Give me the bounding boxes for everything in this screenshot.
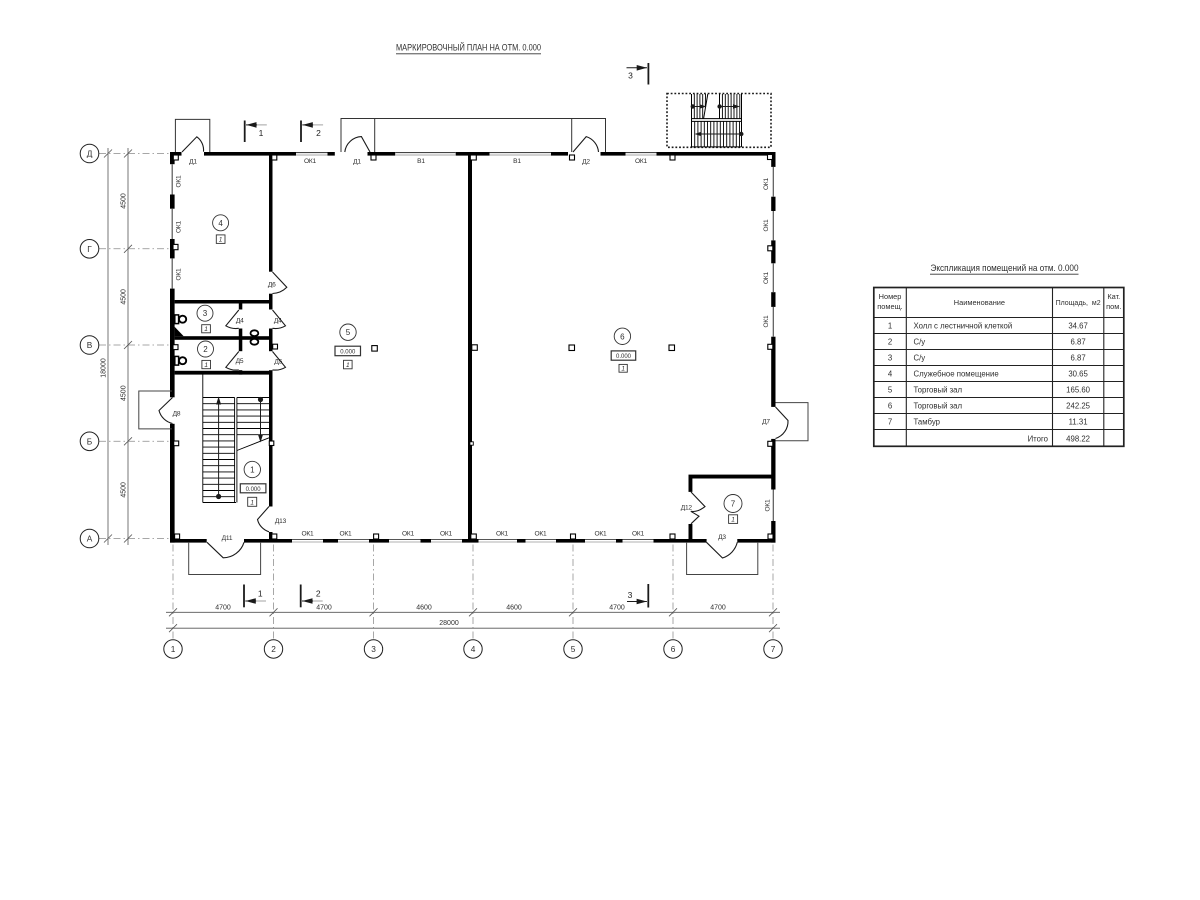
- svg-text:2: 2: [316, 589, 321, 599]
- svg-text:6.87: 6.87: [1071, 354, 1086, 363]
- svg-text:7: 7: [771, 644, 776, 654]
- svg-text:Д6: Д6: [268, 282, 276, 289]
- svg-text:4700: 4700: [215, 605, 231, 612]
- svg-text:1: 1: [219, 237, 223, 244]
- svg-text:Кат.: Кат.: [1107, 292, 1120, 301]
- svg-text:2: 2: [316, 128, 321, 138]
- svg-text:4700: 4700: [710, 605, 726, 612]
- svg-text:Д2: Д2: [582, 159, 590, 166]
- svg-text:5: 5: [346, 328, 351, 337]
- svg-text:Наименование: Наименование: [954, 298, 1005, 307]
- svg-text:7: 7: [731, 500, 736, 509]
- svg-text:4500: 4500: [120, 385, 127, 401]
- svg-text:ОК1: ОК1: [301, 531, 314, 538]
- svg-text:Служебное помещение: Служебное помещение: [914, 370, 999, 379]
- svg-text:4600: 4600: [506, 605, 522, 612]
- svg-text:ОК1: ОК1: [304, 158, 317, 165]
- svg-text:помещ.: помещ.: [877, 302, 902, 311]
- svg-text:4500: 4500: [120, 193, 127, 209]
- svg-text:ОК1: ОК1: [765, 499, 772, 512]
- svg-text:МАРКИРОВОЧНЫЙ ПЛАН НА ОТМ. 0.0: МАРКИРОВОЧНЫЙ ПЛАН НА ОТМ. 0.000: [396, 42, 541, 53]
- svg-text:С/у: С/у: [914, 338, 926, 347]
- svg-text:ОК1: ОК1: [496, 531, 509, 538]
- svg-text:0.000: 0.000: [340, 350, 356, 356]
- svg-text:4: 4: [471, 644, 476, 654]
- svg-text:6.87: 6.87: [1071, 338, 1086, 347]
- svg-text:Д11: Д11: [222, 535, 233, 542]
- svg-text:3: 3: [628, 590, 633, 600]
- svg-text:ОК1: ОК1: [763, 219, 770, 232]
- svg-text:Д1: Д1: [189, 159, 197, 166]
- svg-text:5: 5: [571, 644, 576, 654]
- svg-text:28000: 28000: [439, 620, 459, 627]
- svg-text:6: 6: [671, 644, 676, 654]
- svg-text:6: 6: [888, 402, 892, 411]
- svg-text:30.65: 30.65: [1068, 370, 1088, 379]
- svg-text:4500: 4500: [120, 482, 127, 498]
- svg-text:Экспликация помещений на отм.: Экспликация помещений на отм. 0.000: [931, 263, 1079, 273]
- svg-text:3: 3: [888, 354, 892, 363]
- svg-text:1: 1: [204, 362, 208, 369]
- svg-text:пом.: пом.: [1106, 302, 1121, 311]
- svg-text:242.25: 242.25: [1066, 402, 1091, 411]
- svg-text:ОК1: ОК1: [763, 177, 770, 190]
- svg-text:4600: 4600: [416, 605, 432, 612]
- svg-text:2: 2: [888, 338, 892, 347]
- svg-text:34.67: 34.67: [1068, 322, 1088, 331]
- svg-text:Д1: Д1: [353, 159, 361, 166]
- svg-text:Торговый зал: Торговый зал: [914, 386, 963, 395]
- svg-text:Д3: Д3: [718, 534, 726, 541]
- svg-text:Д12: Д12: [681, 504, 693, 511]
- svg-text:Д5: Д5: [236, 358, 244, 365]
- svg-text:В1: В1: [417, 158, 425, 165]
- svg-text:3: 3: [203, 309, 208, 318]
- svg-text:4700: 4700: [316, 605, 332, 612]
- svg-text:6: 6: [620, 332, 625, 341]
- svg-text:18000: 18000: [100, 358, 107, 378]
- svg-text:4500: 4500: [120, 289, 127, 305]
- svg-text:0.000: 0.000: [246, 487, 262, 493]
- svg-text:1: 1: [731, 517, 735, 524]
- svg-text:Номер: Номер: [879, 292, 902, 301]
- svg-text:ОК1: ОК1: [594, 531, 607, 538]
- svg-text:Д4: Д4: [236, 317, 244, 324]
- svg-text:7: 7: [888, 418, 892, 427]
- svg-text:1: 1: [250, 466, 255, 475]
- svg-text:Тамбур: Тамбур: [914, 418, 941, 427]
- svg-text:С/у: С/у: [914, 354, 926, 363]
- svg-text:4: 4: [888, 370, 893, 379]
- svg-text:Торговый зал: Торговый зал: [914, 402, 963, 411]
- svg-text:1: 1: [258, 589, 263, 599]
- svg-text:5: 5: [888, 386, 893, 395]
- svg-text:Д5: Д5: [274, 358, 282, 365]
- svg-text:Д7: Д7: [762, 418, 770, 425]
- svg-text:ОК1: ОК1: [440, 531, 453, 538]
- svg-text:Итого: Итого: [1028, 435, 1049, 444]
- svg-text:165.60: 165.60: [1066, 386, 1091, 395]
- svg-text:ОК1: ОК1: [175, 268, 182, 281]
- svg-text:Холл с лестничной клеткой: Холл с лестничной клеткой: [914, 322, 1013, 331]
- svg-text:ОК1: ОК1: [632, 531, 645, 538]
- svg-text:11.31: 11.31: [1069, 418, 1088, 427]
- svg-text:ОК1: ОК1: [763, 315, 770, 328]
- svg-text:В: В: [87, 340, 93, 350]
- svg-text:Д13: Д13: [275, 518, 287, 525]
- svg-text:Д: Д: [87, 149, 93, 159]
- svg-text:ОК1: ОК1: [534, 531, 547, 538]
- svg-text:3: 3: [628, 71, 633, 81]
- svg-text:4: 4: [218, 219, 223, 228]
- svg-text:Д8: Д8: [173, 410, 181, 417]
- svg-text:ОК1: ОК1: [763, 271, 770, 284]
- svg-text:2: 2: [271, 644, 276, 654]
- svg-text:ОК1: ОК1: [635, 158, 648, 165]
- svg-text:1: 1: [888, 322, 892, 331]
- svg-text:1: 1: [171, 644, 176, 654]
- svg-text:1: 1: [346, 362, 350, 369]
- svg-text:Площадь, м2: Площадь, м2: [1056, 300, 1101, 307]
- svg-text:Г: Г: [87, 244, 92, 254]
- svg-text:ОК1: ОК1: [402, 531, 415, 538]
- svg-text:ОК1: ОК1: [339, 531, 352, 538]
- svg-text:1: 1: [250, 499, 254, 506]
- svg-text:1: 1: [204, 326, 208, 333]
- svg-text:Д4: Д4: [274, 317, 282, 324]
- svg-text:В1: В1: [513, 158, 521, 165]
- svg-text:1: 1: [259, 128, 264, 138]
- svg-text:2: 2: [203, 345, 208, 354]
- svg-text:4700: 4700: [609, 605, 625, 612]
- svg-text:0.000: 0.000: [616, 354, 632, 360]
- svg-text:А: А: [87, 534, 93, 544]
- svg-text:1: 1: [621, 366, 625, 373]
- svg-text:Б: Б: [87, 437, 93, 447]
- svg-text:ОК1: ОК1: [175, 175, 182, 188]
- svg-text:3: 3: [371, 644, 376, 654]
- svg-text:498.22: 498.22: [1066, 435, 1090, 444]
- svg-text:ОК1: ОК1: [175, 220, 182, 233]
